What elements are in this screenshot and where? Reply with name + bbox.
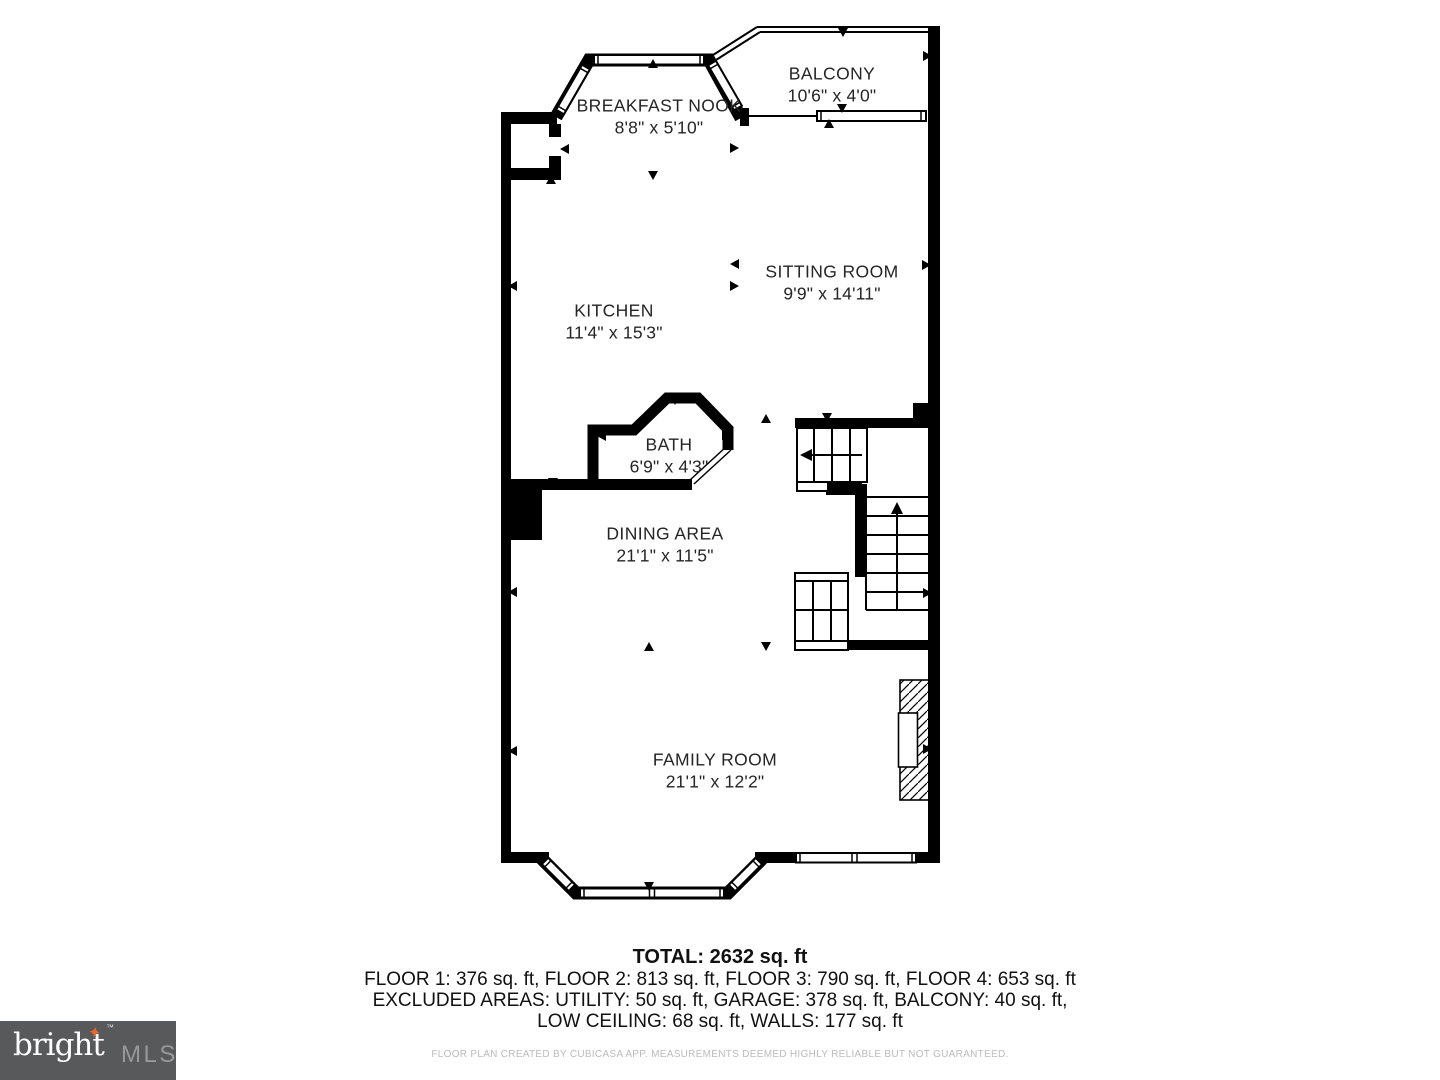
sitting-room-balcony-window xyxy=(817,111,926,121)
room-dimensions: 21'1" x 11'5" xyxy=(606,545,723,567)
room-dimensions: 6'9" x 4'3" xyxy=(630,456,709,478)
room-label-breakfast-nook: BREAKFAST NOOK 8'8" x 5'10" xyxy=(577,96,742,139)
room-label-bath: BATH 6'9" x 4'3" xyxy=(630,435,709,478)
room-name: BATH xyxy=(630,435,709,457)
logo-star-icon: ✦ xyxy=(87,1022,103,1043)
floor-areas-text: FLOOR 1: 376 sq. ft, FLOOR 2: 813 sq. ft… xyxy=(0,969,1440,990)
room-label-dining-area: DINING AREA 21'1" x 11'5" xyxy=(606,524,723,567)
room-label-balcony: BALCONY 10'6" x 4'0" xyxy=(788,64,877,107)
room-name: SITTING ROOM xyxy=(765,262,898,284)
excluded-areas-text: EXCLUDED AREAS: UTILITY: 50 sq. ft, GARA… xyxy=(0,990,1440,1011)
fireplace xyxy=(899,680,931,800)
room-name: FAMILY ROOM xyxy=(653,750,777,772)
room-name: KITCHEN xyxy=(565,301,662,323)
room-dimensions: 9'9" x 14'11" xyxy=(765,283,898,305)
room-dimensions: 10'6" x 4'0" xyxy=(788,85,877,107)
total-area-text: TOTAL: 2632 sq. ft xyxy=(0,946,1440,969)
disclaimer-text: FLOOR PLAN CREATED BY CUBICASA APP. MEAS… xyxy=(0,1049,1440,1060)
floorplan-page: BREAKFAST NOOK 8'8" x 5'10" BALCONY 10'6… xyxy=(0,0,1440,1080)
logo-mls-text: MLS xyxy=(121,1041,178,1069)
room-name: BREAKFAST NOOK xyxy=(577,96,742,118)
area-summary: TOTAL: 2632 sq. ft FLOOR 1: 376 sq. ft, … xyxy=(0,946,1440,1060)
logo-trademark: ™ xyxy=(106,1023,114,1032)
family-room-rear-window xyxy=(796,853,916,863)
room-name: DINING AREA xyxy=(606,524,723,546)
bright-mls-logo: bright ✦ ™ MLS xyxy=(0,1021,176,1080)
room-name: BALCONY xyxy=(788,64,877,86)
room-dimensions: 11'4" x 15'3" xyxy=(565,322,662,344)
room-label-family-room: FAMILY ROOM 21'1" x 12'2" xyxy=(653,750,777,793)
excluded-areas-text-2: LOW CEILING: 68 sq. ft, WALLS: 177 sq. f… xyxy=(0,1011,1440,1032)
room-dimensions: 21'1" x 12'2" xyxy=(653,771,777,793)
room-label-kitchen: KITCHEN 11'4" x 15'3" xyxy=(565,301,662,344)
family-room-bay-window xyxy=(541,858,763,898)
room-dimensions: 8'8" x 5'10" xyxy=(577,117,742,139)
room-label-sitting-room: SITTING ROOM 9'9" x 14'11" xyxy=(765,262,898,305)
